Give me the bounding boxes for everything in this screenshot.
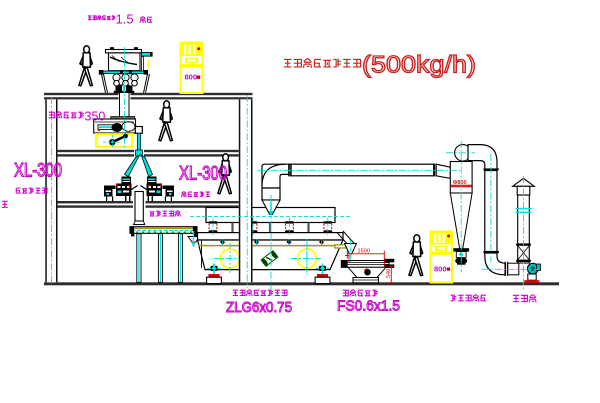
svg-text:350: 350 [85,110,106,124]
svg-text:ZLG6x0.75: ZLG6x0.75 [226,300,292,316]
svg-text:540: 540 [386,269,392,278]
svg-text:1500: 1500 [358,249,370,255]
svg-text:800: 800 [185,73,198,82]
svg-text:1.5: 1.5 [116,12,134,27]
svg-text:(500kg/h): (500kg/h) [362,52,476,79]
svg-text:Φ800: Φ800 [453,180,467,186]
svg-text:XL-300: XL-300 [179,163,227,185]
svg-text:800: 800 [434,265,447,274]
svg-text:FS0.6x1.5: FS0.6x1.5 [337,298,400,315]
svg-text:XL-300: XL-300 [14,160,62,182]
